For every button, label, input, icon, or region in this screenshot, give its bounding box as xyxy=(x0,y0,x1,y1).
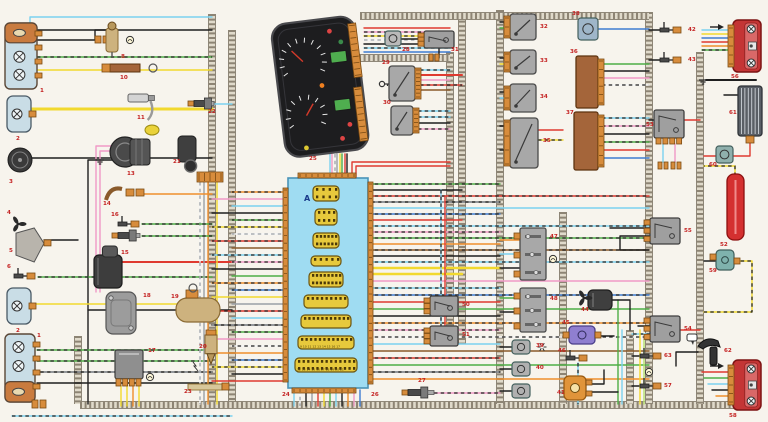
bulb-icon xyxy=(146,373,153,380)
arrow-icon xyxy=(710,24,724,30)
component-number: 4 xyxy=(7,210,11,216)
washer-pump xyxy=(106,22,118,57)
bulb-icon xyxy=(645,368,652,375)
speed-sensor xyxy=(106,188,144,200)
component-number: 17 xyxy=(148,348,156,354)
component-number: 22 xyxy=(208,109,216,115)
headlamp-left xyxy=(5,23,42,89)
component-number: 15 xyxy=(121,250,129,256)
component-number: 25 xyxy=(309,156,317,162)
switch-b xyxy=(512,362,530,376)
component-number: 42 xyxy=(688,27,696,33)
component-number: 36 xyxy=(570,49,578,55)
heater-control xyxy=(514,228,546,280)
component-number: 35 xyxy=(543,138,551,144)
component-number: 13 xyxy=(127,171,135,177)
connector-pair xyxy=(671,162,681,169)
door-switch-front xyxy=(660,22,681,33)
starter-motor xyxy=(94,246,122,288)
component-number: 56 xyxy=(731,74,739,80)
connector-pair xyxy=(32,400,46,408)
fan-icon xyxy=(12,216,27,233)
license-plate-lamp xyxy=(716,146,733,163)
component-number: 50 xyxy=(462,302,470,308)
speedometer-sensor xyxy=(402,387,434,398)
door-switch-rear xyxy=(660,52,681,63)
module-50 xyxy=(424,296,458,316)
ignition-switch xyxy=(389,66,421,101)
component-number: 31 xyxy=(451,47,459,53)
switch-a xyxy=(512,340,530,354)
fan-relay xyxy=(654,110,684,144)
starter-relay xyxy=(418,31,454,48)
component-number: 10 xyxy=(120,75,128,81)
component-number: 6 xyxy=(7,264,11,270)
tail-lamp-left xyxy=(728,20,761,72)
component-number: 37 xyxy=(566,110,574,116)
ignition-module xyxy=(115,350,143,386)
component-number: 33 xyxy=(540,58,548,64)
horn-low-tone xyxy=(16,228,51,262)
droplet-icon xyxy=(145,125,159,135)
component-number: 58 xyxy=(729,413,737,419)
component-number: 30 xyxy=(383,100,391,106)
hood-switch xyxy=(14,268,35,279)
blower-motor xyxy=(588,290,612,310)
fuse-link xyxy=(102,64,140,72)
speech-icon xyxy=(687,334,697,345)
component-number: 53 xyxy=(646,122,654,128)
brake-light-switch xyxy=(578,18,598,40)
component-number: 48 xyxy=(550,296,558,302)
connector-pair xyxy=(658,162,668,169)
heated-rear-window xyxy=(738,86,762,143)
component-number: 54 xyxy=(684,326,692,332)
side-turn-lamp-left xyxy=(7,96,36,132)
fuel-pump-relay xyxy=(644,316,680,342)
component-number: 5 xyxy=(9,248,13,254)
heater-resistor xyxy=(563,326,601,344)
ground-plate xyxy=(106,292,136,334)
spark-icon xyxy=(193,362,198,371)
knock-sensor xyxy=(112,230,140,241)
component-number: 40 xyxy=(536,365,544,371)
component-number: 16 xyxy=(111,212,119,218)
component-number: 26 xyxy=(371,392,379,398)
svg-text:A: A xyxy=(304,194,311,203)
component-number: 32 xyxy=(540,24,548,30)
bulb-icon xyxy=(126,36,133,43)
component-number: 28 xyxy=(402,47,410,53)
component-number: 38 xyxy=(572,11,580,17)
svg-text:9 10 11 12 13 14 15 16 17: 9 10 11 12 13 14 15 16 17 xyxy=(300,345,340,349)
interior-lamp xyxy=(564,376,592,400)
component-number: 3 xyxy=(9,179,13,185)
component-number: 34 xyxy=(540,94,548,100)
brake-fluid-switch xyxy=(118,216,139,227)
component-number: 52 xyxy=(720,242,728,248)
component-number: 63 xyxy=(664,353,672,359)
component-number: 11 xyxy=(137,115,145,121)
component-number: 45 xyxy=(562,320,570,326)
component-number: 62 xyxy=(724,348,732,354)
component-number: 19 xyxy=(171,294,179,300)
coolant-temp-sensor xyxy=(188,98,214,109)
component-number: 18 xyxy=(143,293,151,299)
headlamp-right xyxy=(5,334,40,402)
svg-text:12 13 14 15 16 17 18 19 20 21: 12 13 14 15 16 17 18 19 20 21 xyxy=(297,368,344,372)
component-number: 47 xyxy=(550,234,558,240)
component-number: 1 xyxy=(40,88,44,94)
tail-lamp-right xyxy=(728,360,761,410)
fog-lamp-switch xyxy=(504,50,536,74)
side-turn-lamp-right xyxy=(7,288,36,324)
heated-element xyxy=(188,383,229,390)
component-number: 1 xyxy=(37,333,41,339)
component-number: 41 xyxy=(557,390,565,396)
component-number: 8 xyxy=(121,54,125,60)
wiper-switch xyxy=(504,118,538,168)
component-number: 24 xyxy=(282,392,290,398)
alternator xyxy=(110,137,150,167)
control-unit-a xyxy=(576,56,604,108)
rear-defog-relay xyxy=(644,218,680,244)
harness-connector xyxy=(197,172,223,182)
component-number: 44 xyxy=(581,307,589,313)
horn xyxy=(8,148,32,172)
component-number: 14 xyxy=(103,201,111,207)
control-unit-b xyxy=(574,112,604,170)
component-number: 20 xyxy=(199,344,207,350)
component-number: 39 xyxy=(536,343,544,349)
underhood-lamp xyxy=(385,31,401,46)
bulb-icon xyxy=(549,255,556,262)
component-number: 2 xyxy=(16,328,20,334)
component-number: 61 xyxy=(729,110,737,116)
component-number: 2 xyxy=(16,136,20,142)
cigarette-lighter xyxy=(710,250,740,270)
central-fuse-relay-block: A9 10 11 12 13 14 15 16 1712 13 14 15 16… xyxy=(283,173,373,393)
component-number: 59 xyxy=(709,268,717,274)
component-number: 60 xyxy=(709,162,717,168)
instrument-cluster xyxy=(270,15,371,158)
component-number: 23 xyxy=(184,389,192,395)
wiring-diagram-page: A9 10 11 12 13 14 15 16 1712 13 14 15 16… xyxy=(0,0,768,422)
component-number: 43 xyxy=(688,57,696,63)
component-number: 51 xyxy=(462,332,470,338)
light-switch xyxy=(504,14,536,40)
component-number: 21 xyxy=(173,159,181,165)
high-mount-stop-lamp xyxy=(727,174,744,240)
hazard-switch xyxy=(504,84,536,112)
component-number: 57 xyxy=(664,383,672,389)
module-51 xyxy=(424,326,458,346)
idle-air-valve xyxy=(178,136,197,172)
heater-control-lower xyxy=(514,288,546,332)
component-number: 27 xyxy=(418,378,426,384)
switch-c xyxy=(512,384,530,398)
component-number: 55 xyxy=(684,228,692,234)
component-number: 29 xyxy=(382,60,390,66)
component-number: 46 xyxy=(558,348,566,354)
column-stalk-switch xyxy=(391,106,419,135)
ring-icon xyxy=(149,64,157,72)
wiring-diagram: A9 10 11 12 13 14 15 16 1712 13 14 15 16… xyxy=(0,0,768,422)
key-icon xyxy=(379,81,389,86)
